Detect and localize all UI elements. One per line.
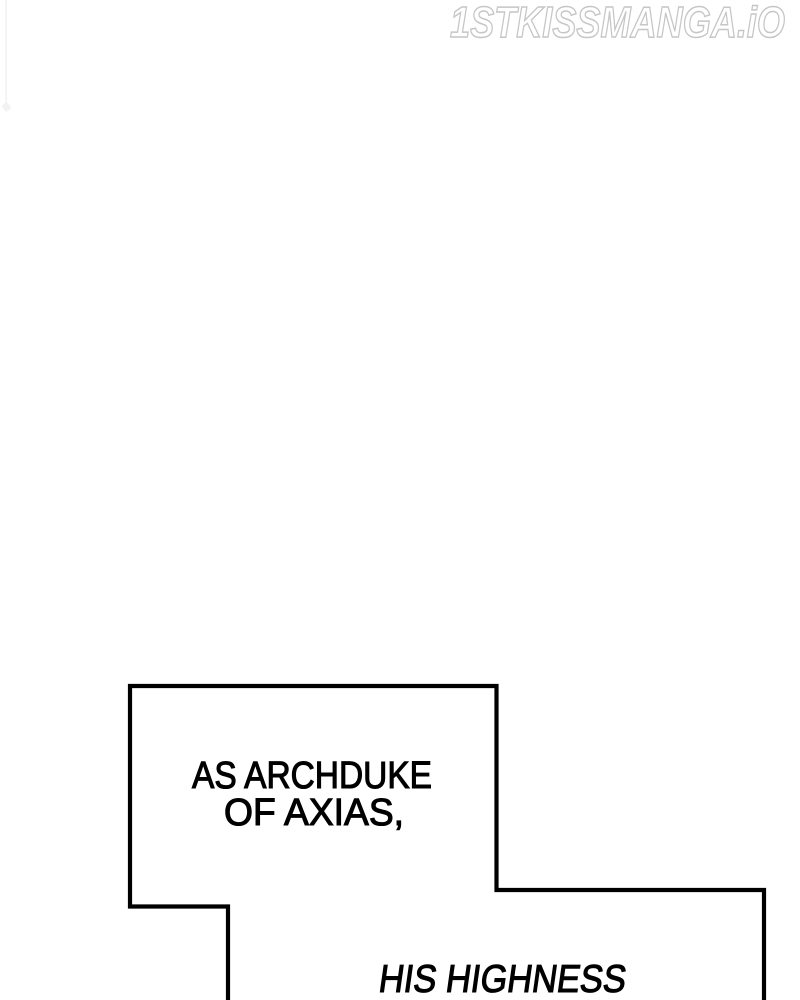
svg-text:AS ARCHDUKE: AS ARCHDUKE bbox=[192, 755, 432, 797]
svg-text:OF AXIAS,: OF AXIAS, bbox=[224, 792, 404, 834]
svg-text:HIS HIGHNESS: HIS HIGHNESS bbox=[376, 958, 629, 1000]
